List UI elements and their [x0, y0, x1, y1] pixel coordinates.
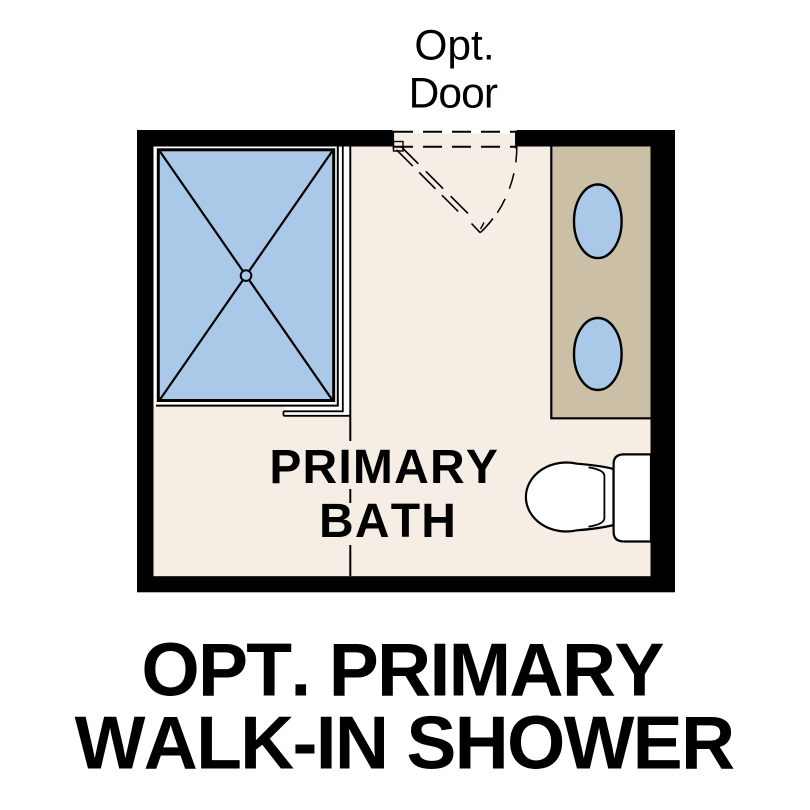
- svg-text:PRIMARY: PRIMARY: [269, 441, 499, 494]
- svg-text:Door: Door: [409, 71, 498, 118]
- svg-text:WALK-IN SHOWER: WALK-IN SHOWER: [75, 701, 734, 785]
- svg-text:OPT. PRIMARY: OPT. PRIMARY: [141, 628, 663, 712]
- svg-text:BATH: BATH: [319, 495, 457, 548]
- svg-text:Opt.: Opt.: [414, 22, 494, 69]
